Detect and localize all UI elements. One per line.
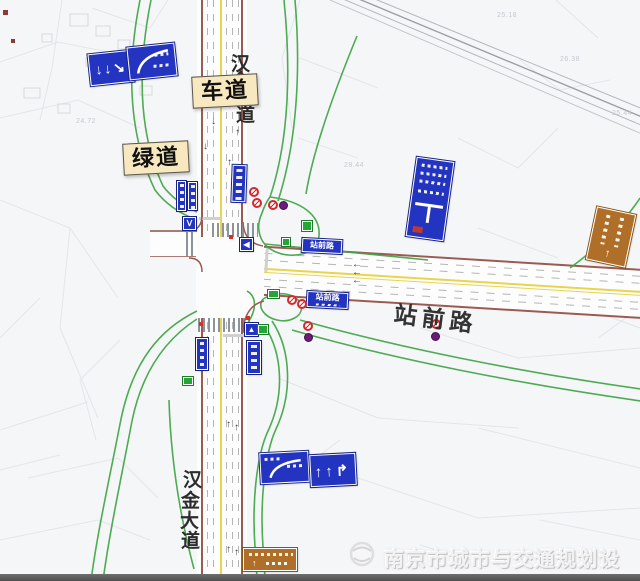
lane-arrow: ↓ <box>211 117 216 127</box>
green-sign <box>268 290 279 298</box>
left-arrow-sign: ◀ <box>240 238 253 251</box>
greenway-lines <box>0 0 640 581</box>
signal-dot <box>229 235 233 239</box>
no-parking-sign <box>268 200 278 210</box>
pedestrian-crossing-sign: ▲ <box>245 323 258 336</box>
guide-sign-lane-arrows-sw: ↑↑↱ <box>309 453 357 487</box>
road-label-hanjin-north: 道 <box>236 106 255 125</box>
pole-sign <box>196 338 208 370</box>
no-parking-sign <box>297 299 307 309</box>
green-sign <box>282 238 290 246</box>
lane-arrow: ↑ <box>226 420 231 430</box>
guide-sign-curve-diagram-sw <box>259 451 310 485</box>
traffic-plan-drawing: 25.18 26.38 28.44 25.44 26.55 24.72 <box>0 0 640 581</box>
lane-arrow: ↑ <box>235 128 240 138</box>
no-parking-sign <box>287 295 297 305</box>
road-label-hanjin-south: 道 <box>181 532 200 551</box>
pole-sign <box>247 341 261 374</box>
no-parking-sign <box>303 321 313 331</box>
curve-diagram <box>260 452 308 483</box>
signal-dot <box>246 316 250 320</box>
pole-sign <box>188 182 197 210</box>
lane-arrow: ↑ <box>227 158 232 168</box>
road-label-hanjin-south: 汉 <box>183 471 202 490</box>
no-parking-sign <box>249 187 259 197</box>
tourist-sign-south: ↑ <box>243 548 297 571</box>
curve-diagram <box>128 44 177 80</box>
callout-lane: 车道 <box>191 73 259 108</box>
lane-arrow: ↑ <box>234 548 239 558</box>
lane-arrow: ↓ <box>203 142 208 152</box>
street-name-sign-north: 站前路 <box>302 238 343 254</box>
pole-sign <box>177 181 186 211</box>
road-label-hanjin-south: 金 <box>181 492 200 511</box>
green-sign <box>302 221 312 231</box>
lane-arrow: ← <box>352 276 362 286</box>
signal-dot <box>199 322 203 326</box>
pole-sign <box>231 165 246 202</box>
v-sign: Ⅴ <box>183 217 196 230</box>
lane-arrow: ↑ <box>226 545 231 555</box>
green-sign <box>183 377 193 385</box>
guide-sign-curve-diagram-nw <box>126 43 177 81</box>
t-junction-stem <box>426 207 431 223</box>
lane-arrow: ↑ <box>234 423 239 433</box>
street-name-sign-south: 站前路 <box>307 291 349 309</box>
signal-head-dot <box>279 201 288 210</box>
bottom-bar <box>0 574 640 581</box>
callout-greenway: 绿道 <box>122 140 190 175</box>
road-label-hanjin-south: 大 <box>180 512 199 531</box>
signal-head-dot <box>304 333 313 342</box>
institute-logo <box>348 540 376 568</box>
red-chip <box>412 226 423 233</box>
no-parking-sign <box>252 198 262 208</box>
green-sign <box>258 325 268 334</box>
